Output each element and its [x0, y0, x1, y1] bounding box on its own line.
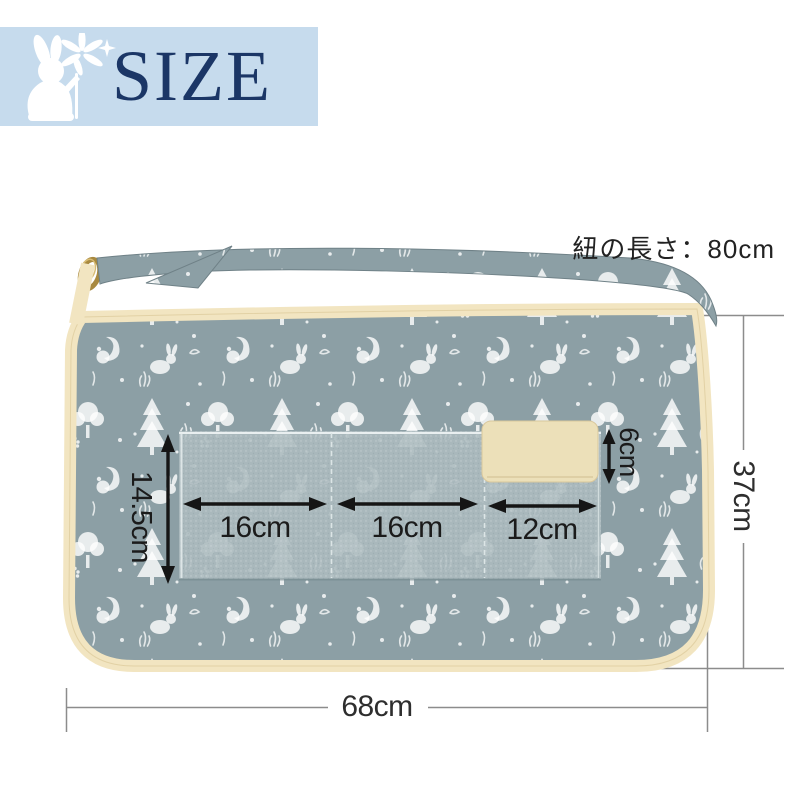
strap-length-label: 紐の長さ：80cm	[560, 229, 775, 266]
pocket-middle-width-label: 16cm	[355, 511, 459, 545]
body-width-label: 68cm	[325, 690, 429, 724]
loop-height-label: 6cm	[614, 417, 644, 487]
body-height-label: 37cm	[728, 446, 760, 546]
page-title: SIZE	[112, 27, 272, 126]
pocket-height-label: 14.5cm	[123, 452, 157, 582]
pocket-left-width-label: 16cm	[203, 511, 307, 545]
size-diagram-page: SIZE 紐の長さ：80cm 16cm 16cm 12cm 14.5cm 6cm…	[0, 0, 800, 800]
size-banner: SIZE	[0, 27, 318, 126]
loop-patch	[482, 421, 598, 482]
rabbit-holding-flower-icon	[14, 33, 118, 123]
pocket-right-width-label: 12cm	[490, 513, 594, 547]
